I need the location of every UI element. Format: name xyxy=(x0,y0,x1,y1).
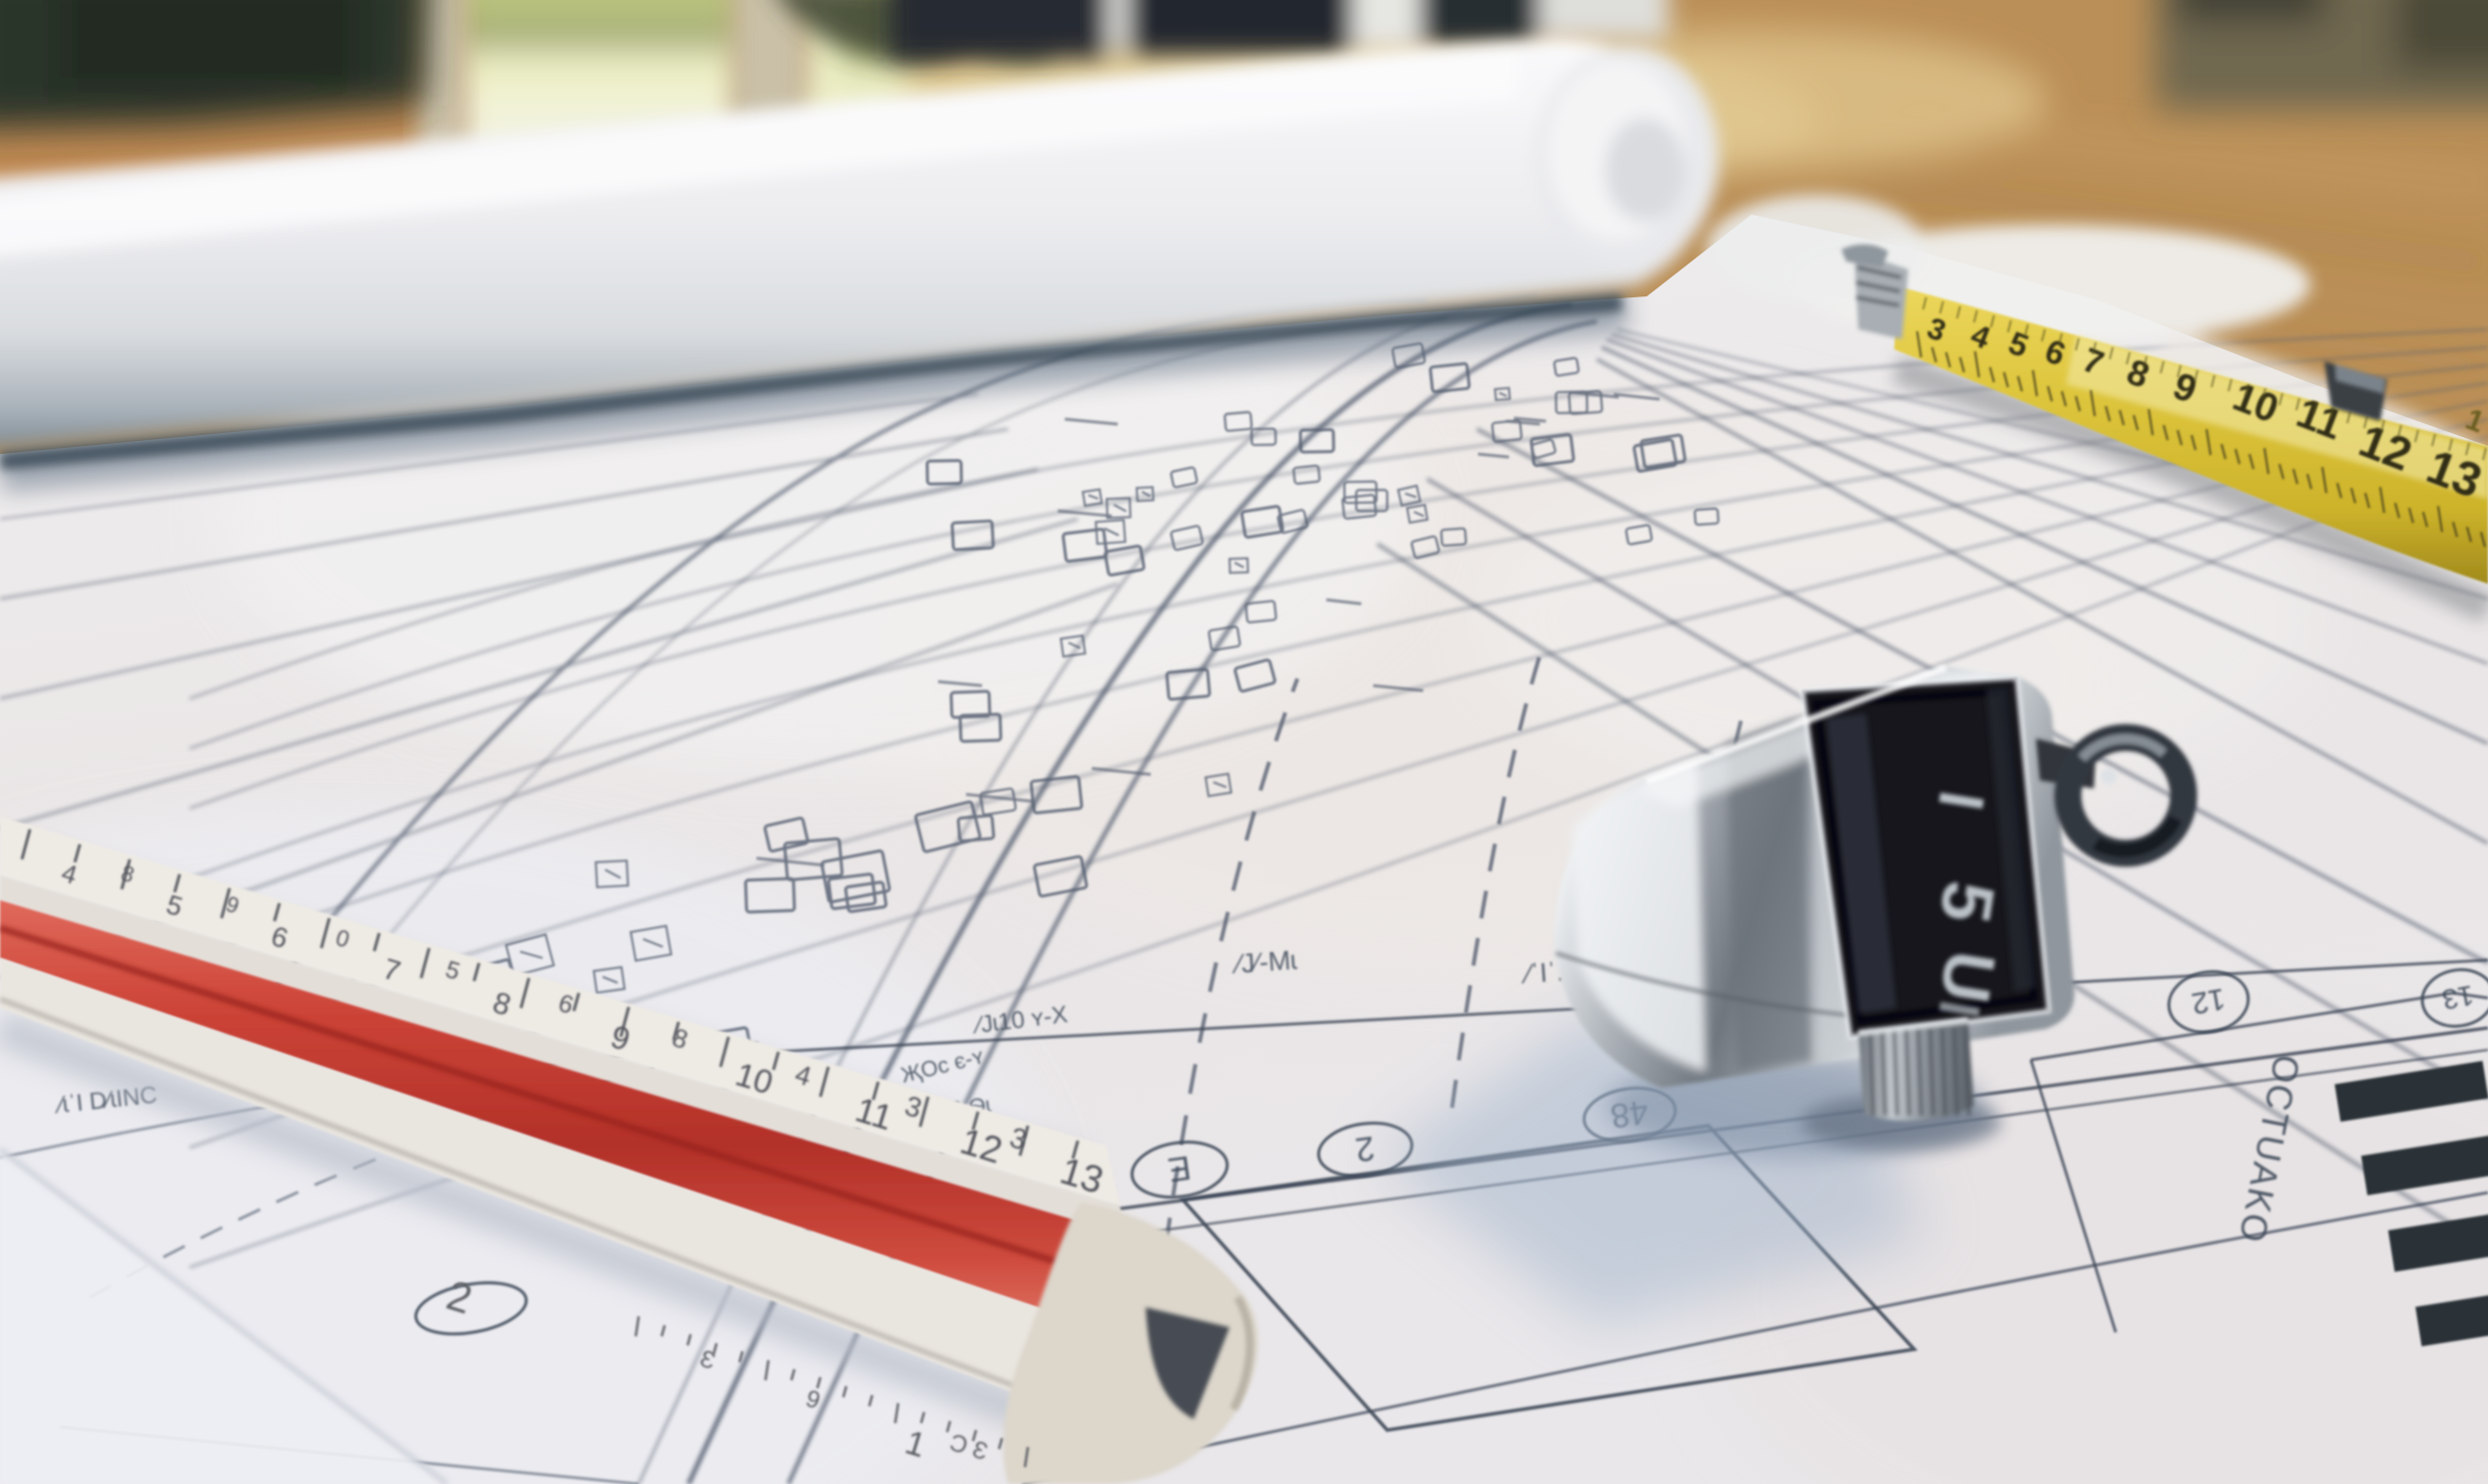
svg-text:13: 13 xyxy=(2440,979,2476,1015)
svg-text:12: 12 xyxy=(2189,982,2228,1020)
svg-text:⁄J⁄-Mɩ: ⁄J⁄-Mɩ xyxy=(1230,945,1297,980)
